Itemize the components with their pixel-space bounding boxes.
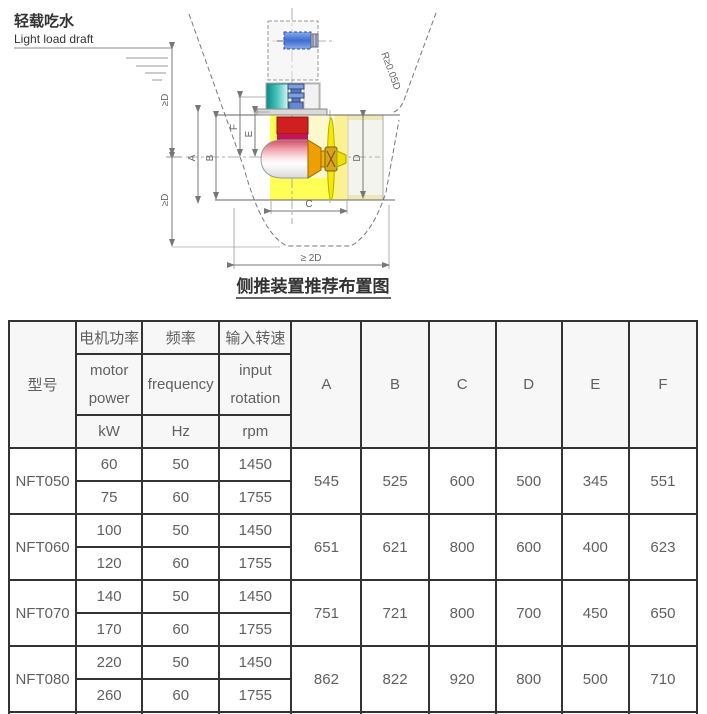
rpm-cell: 1755 xyxy=(219,547,291,580)
header-dim-b: B xyxy=(361,321,428,448)
gearbox xyxy=(277,117,308,134)
model-cell: NFT080 xyxy=(9,646,76,712)
thruster-arrangement-diagram: 轻载吃水 Light load draft xyxy=(0,0,707,318)
dim-d-cell: 600 xyxy=(496,514,562,580)
electric-motor xyxy=(268,21,318,80)
dim-f-cell: 551 xyxy=(629,448,697,514)
power-cell: 120 xyxy=(76,547,142,580)
header-dim-c: C xyxy=(429,321,496,448)
draft-label-en: Light load draft xyxy=(14,32,94,46)
waterline: 轻载吃水 Light load draft xyxy=(14,12,172,80)
dim-e-cell: 400 xyxy=(562,514,629,580)
model-cell: NFT050 xyxy=(9,448,76,514)
dim-b-cell: 525 xyxy=(361,448,428,514)
dim-e-cell: 500 xyxy=(562,646,629,712)
dim-b-cell: 822 xyxy=(361,646,428,712)
dim-c-cell: 600 xyxy=(429,448,496,514)
dim-label-2d: ≥ 2D xyxy=(300,253,321,264)
model-cell: NFT070 xyxy=(9,580,76,646)
dim-a-cell: 751 xyxy=(291,580,361,646)
rpm-cell: 1755 xyxy=(219,613,291,646)
dim-d-cell: 500 xyxy=(496,448,562,514)
header-power-cn: 电机功率 xyxy=(76,321,142,354)
dim-d-cell: 700 xyxy=(496,580,562,646)
freq-cell: 50 xyxy=(142,514,219,547)
power-cell: 140 xyxy=(76,580,142,613)
shaft-coupling xyxy=(288,84,304,109)
diagram-svg: 轻载吃水 Light load draft xyxy=(0,0,707,318)
table-row: NFT070 140 50 1450 751 721 800 700 450 6… xyxy=(9,580,697,613)
rpm-cell: 1755 xyxy=(219,481,291,514)
thruster-spec-table: 型号 电机功率 频率 输入转速 A B C D E F motorpower f… xyxy=(8,320,698,714)
dim-label-f: F xyxy=(229,124,240,130)
dim-a-cell: 862 xyxy=(291,646,361,712)
dim-c-cell: 920 xyxy=(429,646,496,712)
power-cell: 220 xyxy=(76,646,142,679)
power-cell: 60 xyxy=(76,448,142,481)
header-power-en2: power xyxy=(89,390,130,407)
water-hatch-marks xyxy=(126,58,168,80)
header-power-unit: kW xyxy=(76,415,142,448)
dim-c-cell: 800 xyxy=(429,580,496,646)
power-cell: 260 xyxy=(76,679,142,712)
freq-cell: 60 xyxy=(142,679,219,712)
dim-e-cell: 345 xyxy=(562,448,629,514)
header-power-en: motorpower xyxy=(76,354,142,415)
thruster-spec-page: 轻载吃水 Light load draft xyxy=(0,0,707,714)
draft-label-cn: 轻载吃水 xyxy=(14,12,75,30)
dim-b-cell: 621 xyxy=(361,514,428,580)
rpm-cell: 1755 xyxy=(219,679,291,712)
header-dim-f: F xyxy=(629,321,697,448)
dim-f-cell: 650 xyxy=(629,580,697,646)
header-power-en1: motor xyxy=(90,362,128,379)
diagram-caption: 侧推装置推荐布置图 xyxy=(237,276,390,296)
freq-cell: 60 xyxy=(142,547,219,580)
freq-cell: 50 xyxy=(142,448,219,481)
rpm-cell: 1450 xyxy=(219,646,291,679)
header-freq-unit: Hz xyxy=(142,415,219,448)
header-dim-d: D xyxy=(496,321,562,448)
header-speed-en: inputrotation xyxy=(219,354,291,415)
dim-label-geq-d-lower: ≥D xyxy=(160,194,171,207)
dim-label-b: B xyxy=(205,154,216,161)
table-row: NFT050 60 50 1450 545 525 600 500 345 55… xyxy=(9,448,697,481)
power-cell: 170 xyxy=(76,613,142,646)
freq-cell: 60 xyxy=(142,481,219,514)
header-speed-en1: input xyxy=(239,362,272,379)
dim-f-cell: 710 xyxy=(629,646,697,712)
pod-gondola xyxy=(261,140,308,178)
table-row: NFT060 100 50 1450 651 621 800 600 400 6… xyxy=(9,514,697,547)
header-freq-en: frequency xyxy=(142,354,219,415)
coupling-unit xyxy=(257,83,327,115)
dim-label-c: C xyxy=(305,199,312,210)
header-dim-e: E xyxy=(562,321,629,448)
rpm-cell: 1450 xyxy=(219,580,291,613)
rpm-cell: 1450 xyxy=(219,448,291,481)
header-freq-cn: 频率 xyxy=(142,321,219,354)
dim-e-cell: 450 xyxy=(562,580,629,646)
dim-f-cell: 623 xyxy=(629,514,697,580)
freq-cell: 60 xyxy=(142,613,219,646)
dim-label-a: A xyxy=(187,154,198,161)
header-dim-a: A xyxy=(291,321,361,448)
freq-cell: 50 xyxy=(142,646,219,679)
dim-b-cell: 721 xyxy=(361,580,428,646)
freq-cell: 50 xyxy=(142,580,219,613)
header-speed-en2: rotation xyxy=(230,390,280,407)
dim-label-d: D xyxy=(352,154,363,161)
rpm-cell: 1450 xyxy=(219,514,291,547)
header-speed-cn: 输入转速 xyxy=(219,321,291,354)
dim-label-geq-d-upper: ≥D xyxy=(160,94,171,107)
dim-d-cell: 800 xyxy=(496,646,562,712)
dim-c-cell: 800 xyxy=(429,514,496,580)
table-row: NFT080 220 50 1450 862 822 920 800 500 7… xyxy=(9,646,697,679)
header-model: 型号 xyxy=(9,321,76,448)
dim-a-cell: 651 xyxy=(291,514,361,580)
dim-label-e: E xyxy=(244,130,255,137)
power-cell: 100 xyxy=(76,514,142,547)
model-cell: NFT060 xyxy=(9,514,76,580)
radius-note: R≥0.05D xyxy=(378,51,402,92)
header-speed-unit: rpm xyxy=(219,415,291,448)
dim-a-cell: 545 xyxy=(291,448,361,514)
power-cell: 75 xyxy=(76,481,142,514)
